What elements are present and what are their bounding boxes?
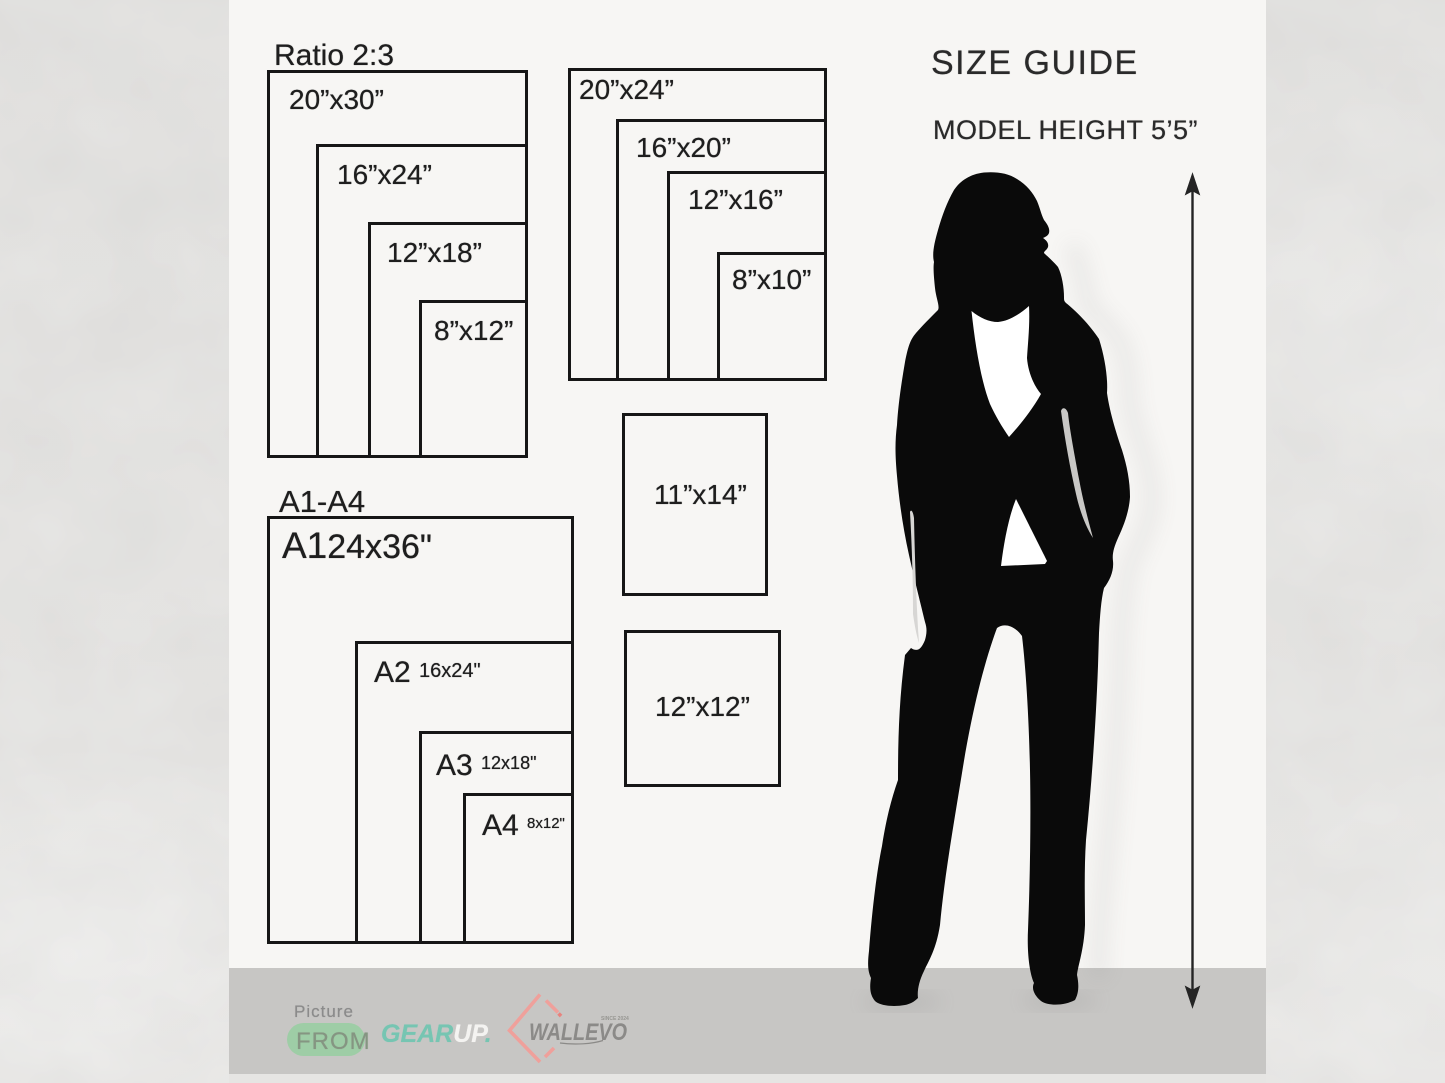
svg-text:WALLEVO: WALLEVO xyxy=(529,1019,627,1046)
svg-text:SINCE 2024: SINCE 2024 xyxy=(601,1016,629,1022)
